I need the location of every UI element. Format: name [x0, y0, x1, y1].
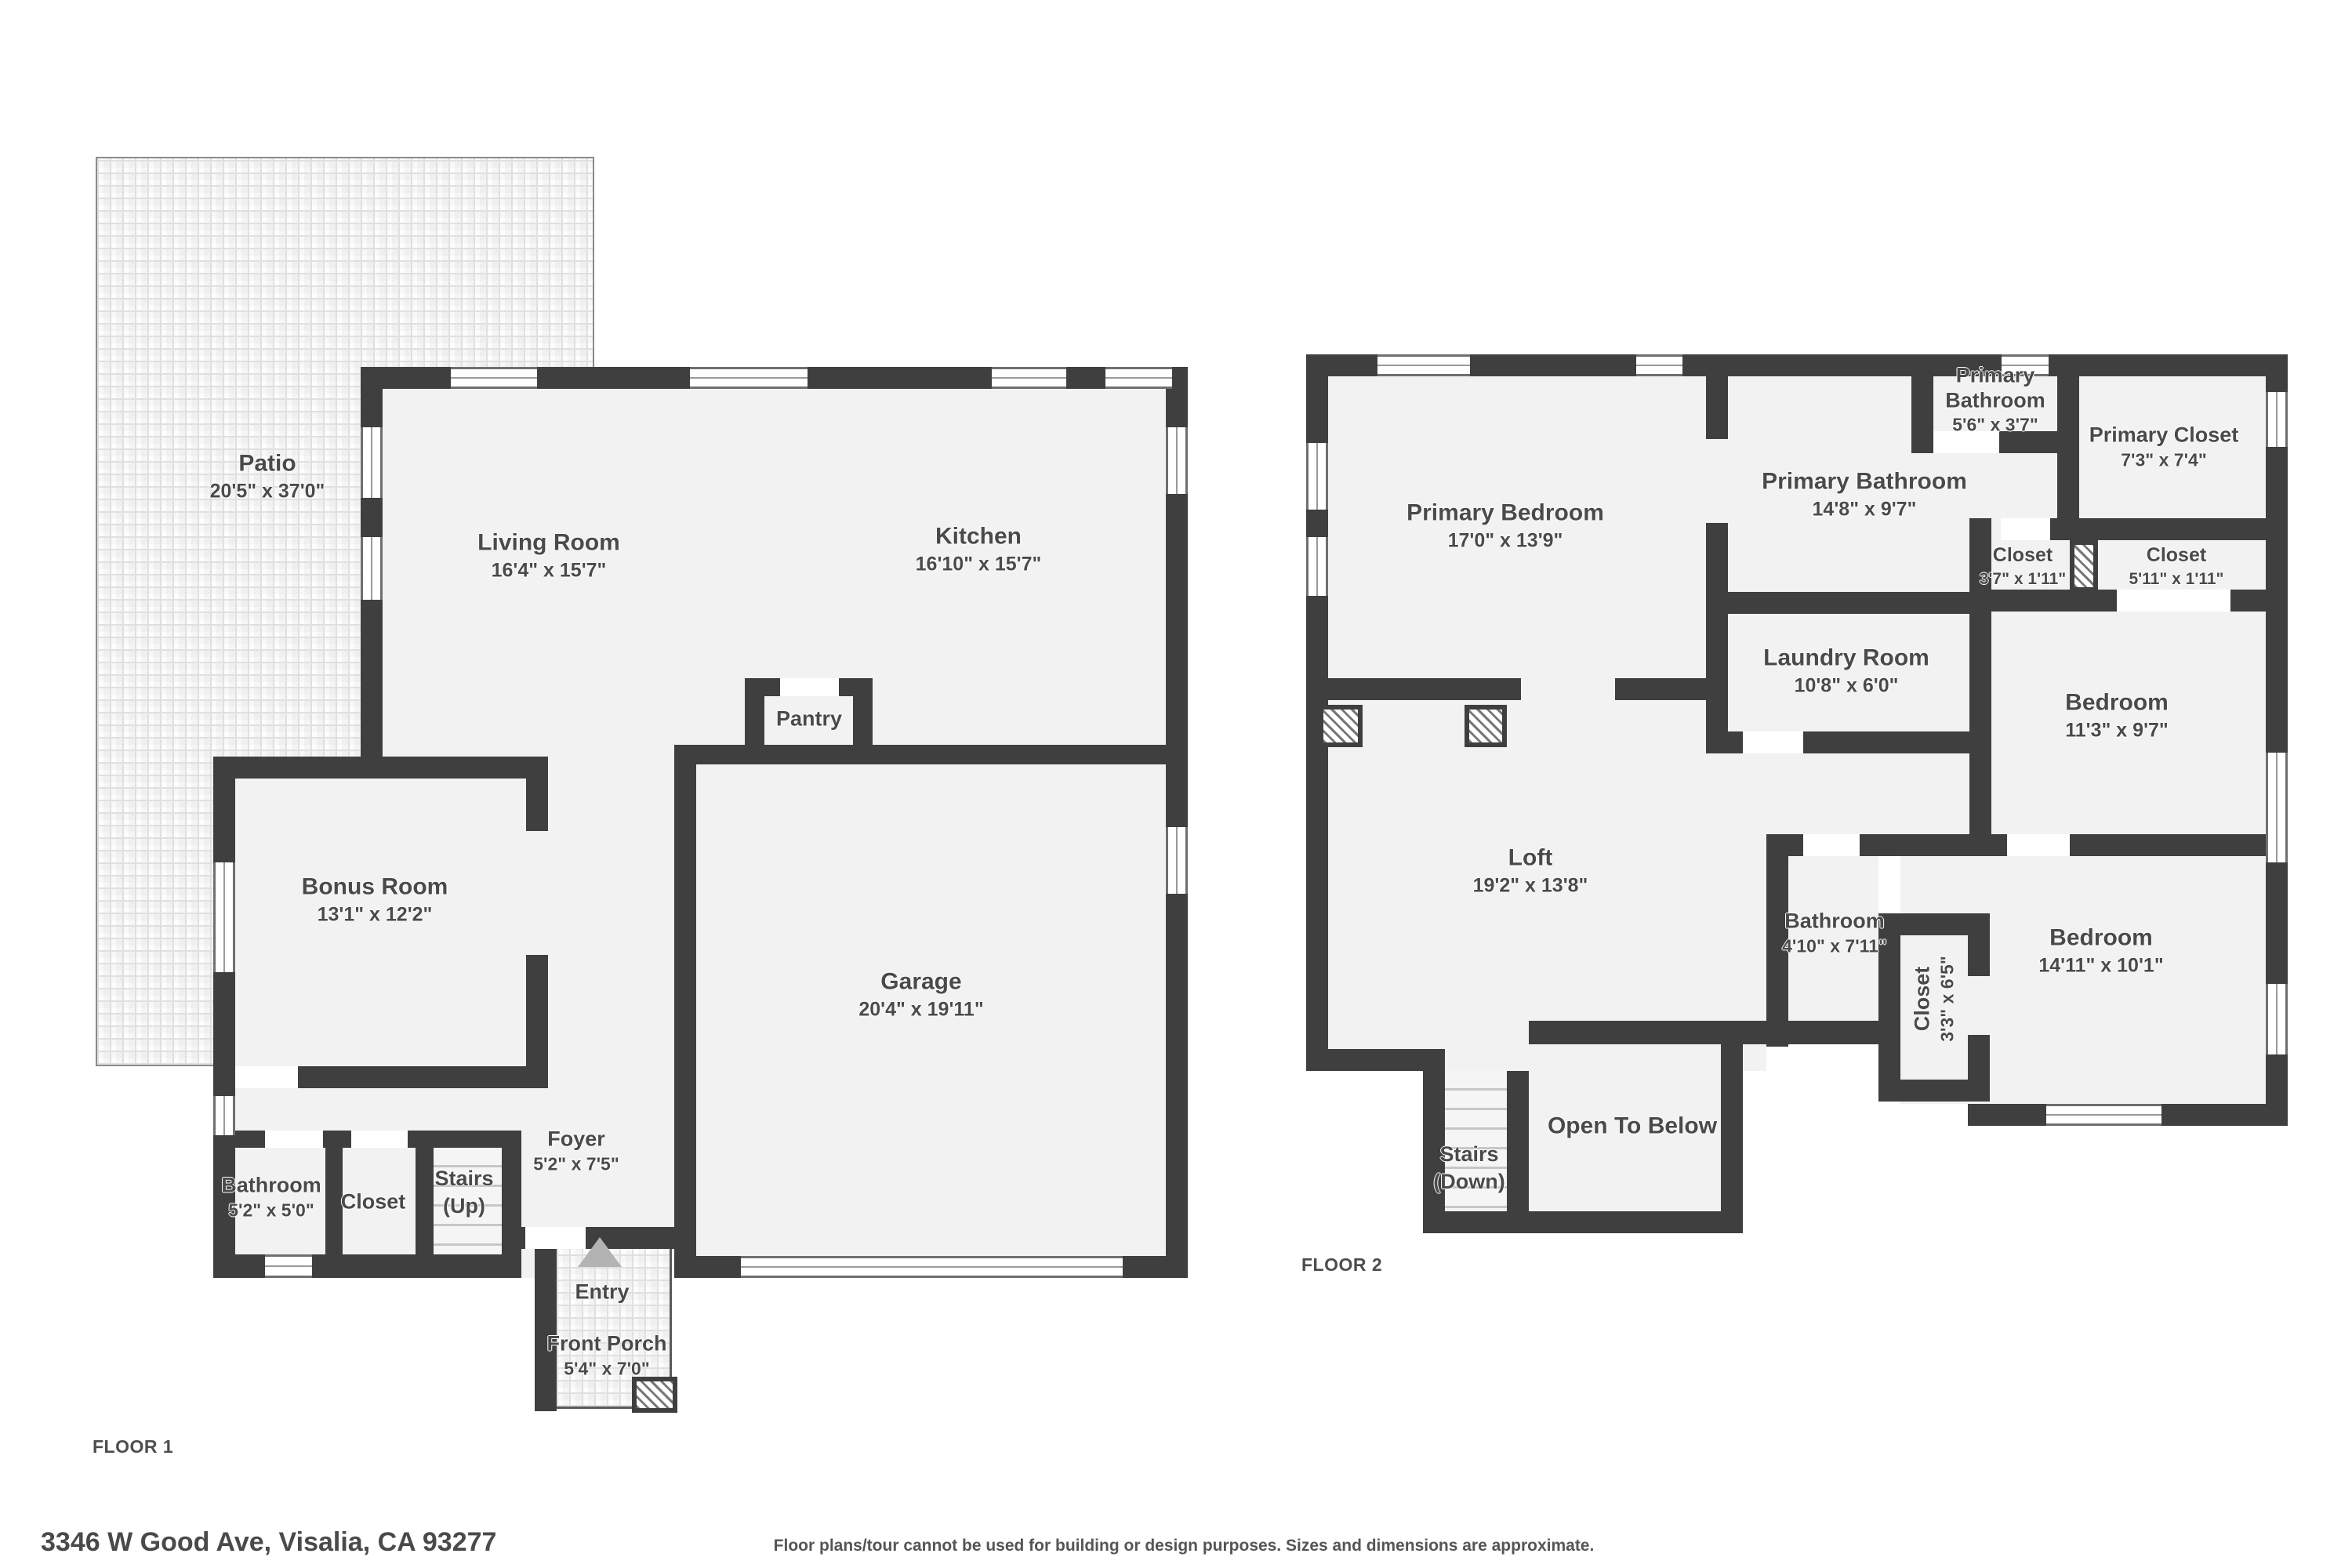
room-label-bonus-room: Bonus Room 13'1" x 12'2" [302, 871, 448, 927]
room-name: Bedroom [2065, 687, 2169, 717]
room-label-primary-bathroom-small: Primary Bathroom 5'6" x 3'7" [1925, 363, 2066, 437]
door-opening [1803, 834, 1860, 856]
window [1166, 827, 1188, 894]
room-label-living-room: Living Room 16'4" x 15'7" [477, 527, 620, 583]
room-dims: 5'4" x 7'0" [564, 1358, 650, 1381]
room-dims: 16'10" x 15'7" [916, 551, 1042, 577]
window [2266, 753, 2288, 862]
room-dims: 5'6" x 3'7" [1952, 413, 2038, 437]
room-dims: 20'4" x 19'11" [858, 996, 983, 1022]
door-opening [2007, 834, 2070, 856]
door-opening [351, 1131, 408, 1148]
wall [502, 1227, 525, 1249]
window [992, 367, 1066, 389]
room-label-stairs-down: Stairs (Down) [1433, 1141, 1504, 1196]
room-name: Open To Below [1548, 1111, 1717, 1142]
entry-arrow-icon [578, 1237, 622, 1267]
room-label-garage: Garage 20'4" x 19'11" [858, 966, 983, 1022]
room-name: Front Porch [547, 1330, 667, 1358]
room-label-primary-bedroom: Primary Bedroom 17'0" x 13'9" [1406, 497, 1604, 554]
room-name: Pantry [776, 705, 842, 732]
room-label-closet-c: Closet 3'3" x 6'5" [1909, 956, 1960, 1042]
room-dims: 19'2" x 13'8" [1473, 873, 1588, 898]
window [741, 1256, 1123, 1278]
window [361, 537, 383, 600]
room-label-patio: Patio 20'5" x 37'0" [210, 448, 325, 504]
room-dims: 5'2" x 7'5" [533, 1153, 619, 1177]
window [1377, 354, 1470, 376]
wall [213, 1254, 521, 1278]
room-label-bathroom2: Bathroom 4'10" x 7'11" [1782, 908, 1887, 959]
window [451, 367, 537, 389]
floor-plan-page: Patio 20'5" x 37'0" Living Room 16'4" x … [0, 0, 2352, 1568]
room-name: Primary Closet [2089, 422, 2239, 449]
window [1306, 537, 1328, 596]
window [1636, 354, 1682, 376]
room-dims: 5'11" x 1'11" [2129, 568, 2223, 590]
room-dims: 16'4" x 15'7" [492, 557, 607, 583]
room-name: Primary Bathroom [1762, 466, 1967, 496]
room-dims: 13'1" x 12'2" [318, 902, 433, 927]
window [690, 367, 808, 389]
room-name: Stairs [1439, 1141, 1498, 1168]
room-name: Laundry Room [1763, 642, 1929, 673]
room-dims: 3'3" x 6'5" [1936, 956, 1960, 1042]
room-name: Foyer [547, 1126, 605, 1153]
wall [1706, 731, 1743, 753]
door-opening [780, 678, 839, 696]
wall [526, 955, 548, 1088]
room-name: Bonus Room [302, 871, 448, 902]
wall [1878, 1080, 1990, 1102]
room-label-closet-b: Closet 5'11" x 1'11" [2129, 543, 2223, 590]
floor2-tag: FLOOR 2 [1301, 1254, 1382, 1276]
room-name: Garage [880, 966, 961, 996]
door-opening [2117, 590, 2230, 612]
room-dims: 7'3" x 7'4" [2121, 449, 2207, 473]
room-label-entry: Entry [575, 1278, 629, 1305]
room-dims: 20'5" x 37'0" [210, 478, 325, 504]
room-label-kitchen: Kitchen 16'10" x 15'7" [916, 521, 1042, 577]
wall [1706, 523, 1728, 753]
wall [1123, 1256, 1188, 1278]
wall [2161, 1104, 2288, 1126]
hatch-chimney [1465, 705, 1507, 747]
room-name: Closet [2147, 543, 2206, 568]
wall [2070, 834, 2288, 856]
door-opening [525, 1227, 586, 1249]
wall [1803, 731, 1991, 753]
property-address: 3346 W Good Ave, Visalia, CA 93277 [41, 1527, 496, 1558]
room-name: Loft [1508, 842, 1553, 873]
wall [1166, 367, 1188, 1278]
wall [2230, 590, 2288, 612]
room-name: Entry [575, 1278, 629, 1305]
wall [1306, 678, 1521, 700]
wall [745, 678, 780, 696]
room-name: Closet [1909, 967, 1936, 1032]
wall [1423, 1211, 1743, 1233]
room-name: Bedroom [2049, 922, 2153, 953]
window [213, 1096, 235, 1135]
room-label-bedroom-b: Bedroom 14'11" x 10'1" [2038, 922, 2163, 978]
window [265, 1254, 312, 1278]
wall [674, 1256, 741, 1278]
window [213, 862, 235, 972]
room-name: Stairs [434, 1165, 493, 1192]
wall [2050, 518, 2288, 540]
room-dims: 17'0" x 13'9" [1448, 528, 1563, 554]
room-dims: 5'2" x 5'0" [228, 1200, 314, 1223]
room-label-primary-bathroom: Primary Bathroom 14'8" x 9'7" [1762, 466, 1967, 522]
wall [502, 1131, 521, 1278]
room-name: Kitchen [935, 521, 1022, 551]
room-label-closet1: Closet [341, 1188, 406, 1215]
room-name: Primary Bedroom [1406, 497, 1604, 528]
room-dims: 11'3" x 9'7" [2065, 717, 2169, 743]
wall [323, 1131, 351, 1148]
room-label-bedroom-a: Bedroom 11'3" x 9'7" [2065, 687, 2169, 743]
window [2266, 984, 2288, 1054]
room-label-front-porch: Front Porch 5'4" x 7'0" [547, 1330, 667, 1381]
wall [416, 1148, 434, 1254]
room-name: Living Room [477, 527, 620, 557]
room-dims: (Up) [443, 1192, 485, 1220]
door-opening [2001, 518, 2050, 540]
disclaimer-text: Floor plans/tour cannot be used for buil… [774, 1537, 1595, 1555]
room-dims: 14'11" x 10'1" [2038, 953, 2163, 978]
room-dims: 14'8" x 9'7" [1813, 496, 1917, 522]
hatch-chimney [1319, 705, 1363, 747]
room-label-bathroom1: Bathroom 5'2" x 5'0" [221, 1172, 321, 1223]
room-dims: (Down) [1433, 1168, 1504, 1196]
wall [1529, 1021, 1900, 1044]
wall [674, 745, 696, 1278]
room-label-primary-closet: Primary Closet 7'3" x 7'4" [2089, 422, 2239, 473]
room-label-loft: Loft 19'2" x 13'8" [1473, 842, 1588, 898]
room-label-open-to-below: Open To Below [1548, 1111, 1717, 1142]
room-name: Bathroom [221, 1172, 321, 1200]
wall [1721, 1043, 1743, 1211]
wall [1969, 590, 2117, 612]
door-opening [265, 1131, 323, 1148]
room-name: Closet [1993, 543, 2053, 568]
wall [1968, 1104, 2046, 1126]
window [361, 427, 383, 498]
wall [1860, 834, 2007, 856]
door-opening [1743, 731, 1803, 753]
room-dims: 10'8" x 6'0" [1795, 673, 1899, 699]
window [2046, 1104, 2161, 1126]
room-name: Primary Bathroom [1925, 363, 2066, 414]
room-name: Patio [238, 448, 296, 478]
room-dims: 4'10" x 7'11" [1782, 935, 1887, 959]
room-dims: 3'7" x 1'11" [1980, 568, 2067, 590]
room-label-stairs-up: Stairs (Up) [434, 1165, 493, 1220]
hatch-chase [2070, 540, 2098, 592]
porch-post [632, 1377, 677, 1413]
window [1166, 427, 1188, 494]
window [1105, 367, 1172, 389]
wall [325, 1148, 343, 1254]
room-name: Closet [341, 1188, 406, 1215]
floor1-tag: FLOOR 1 [93, 1436, 173, 1457]
wall [1507, 1071, 1529, 1211]
room-label-foyer: Foyer 5'2" x 7'5" [533, 1126, 619, 1177]
room-label-pantry: Pantry [776, 705, 842, 732]
window [2266, 392, 2288, 447]
wall [1728, 592, 1991, 614]
wall [839, 678, 873, 696]
wall [1706, 354, 1728, 439]
room-label-laundry-room: Laundry Room 10'8" x 6'0" [1763, 642, 1929, 699]
wall [1968, 913, 1990, 976]
wall [213, 757, 548, 779]
room-name: Bathroom [1784, 908, 1885, 935]
room-label-closet-a: Closet 3'7" x 1'11" [1980, 543, 2067, 590]
door-opening [235, 1066, 298, 1088]
wall [526, 757, 548, 831]
window [1306, 443, 1328, 510]
